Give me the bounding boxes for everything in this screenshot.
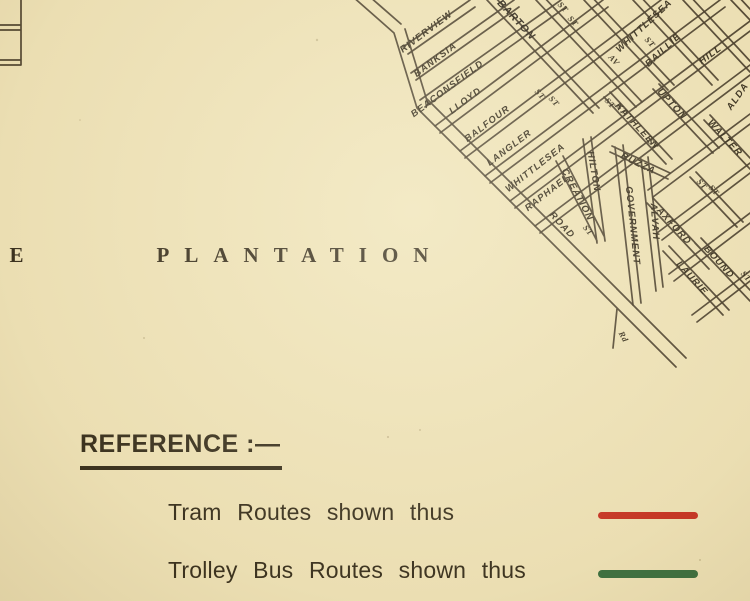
partial-blocks xyxy=(0,0,21,65)
region-label: PLANTATION xyxy=(157,243,444,267)
region-label: E xyxy=(9,243,38,267)
street-label: BOUND xyxy=(701,244,736,281)
trolley-bus-route-color-line xyxy=(598,570,698,578)
street-label: Rd xyxy=(616,329,631,344)
street-label: ST xyxy=(739,269,750,284)
map-labels: EPLANTATIONRIVERVIEWBANKSIABEACONSFIELDL… xyxy=(9,0,750,344)
street-label: LANGLER xyxy=(485,127,534,168)
street-label: GOVERNMENT xyxy=(623,186,642,266)
legend-label-trolley-bus: Trolley Bus Routes shown thus xyxy=(168,557,526,584)
street-label: HILL xyxy=(697,43,724,67)
street-label: ST xyxy=(533,87,548,102)
reference-heading: REFERENCE :— xyxy=(80,430,282,470)
map-canvas: EPLANTATIONRIVERVIEWBANKSIABEACONSFIELDL… xyxy=(0,0,750,601)
street-network xyxy=(0,0,750,367)
legend-label-tram: Tram Routes shown thus xyxy=(168,499,454,526)
tram-route-color-line xyxy=(598,512,698,519)
street-label: UPTON xyxy=(655,86,689,122)
